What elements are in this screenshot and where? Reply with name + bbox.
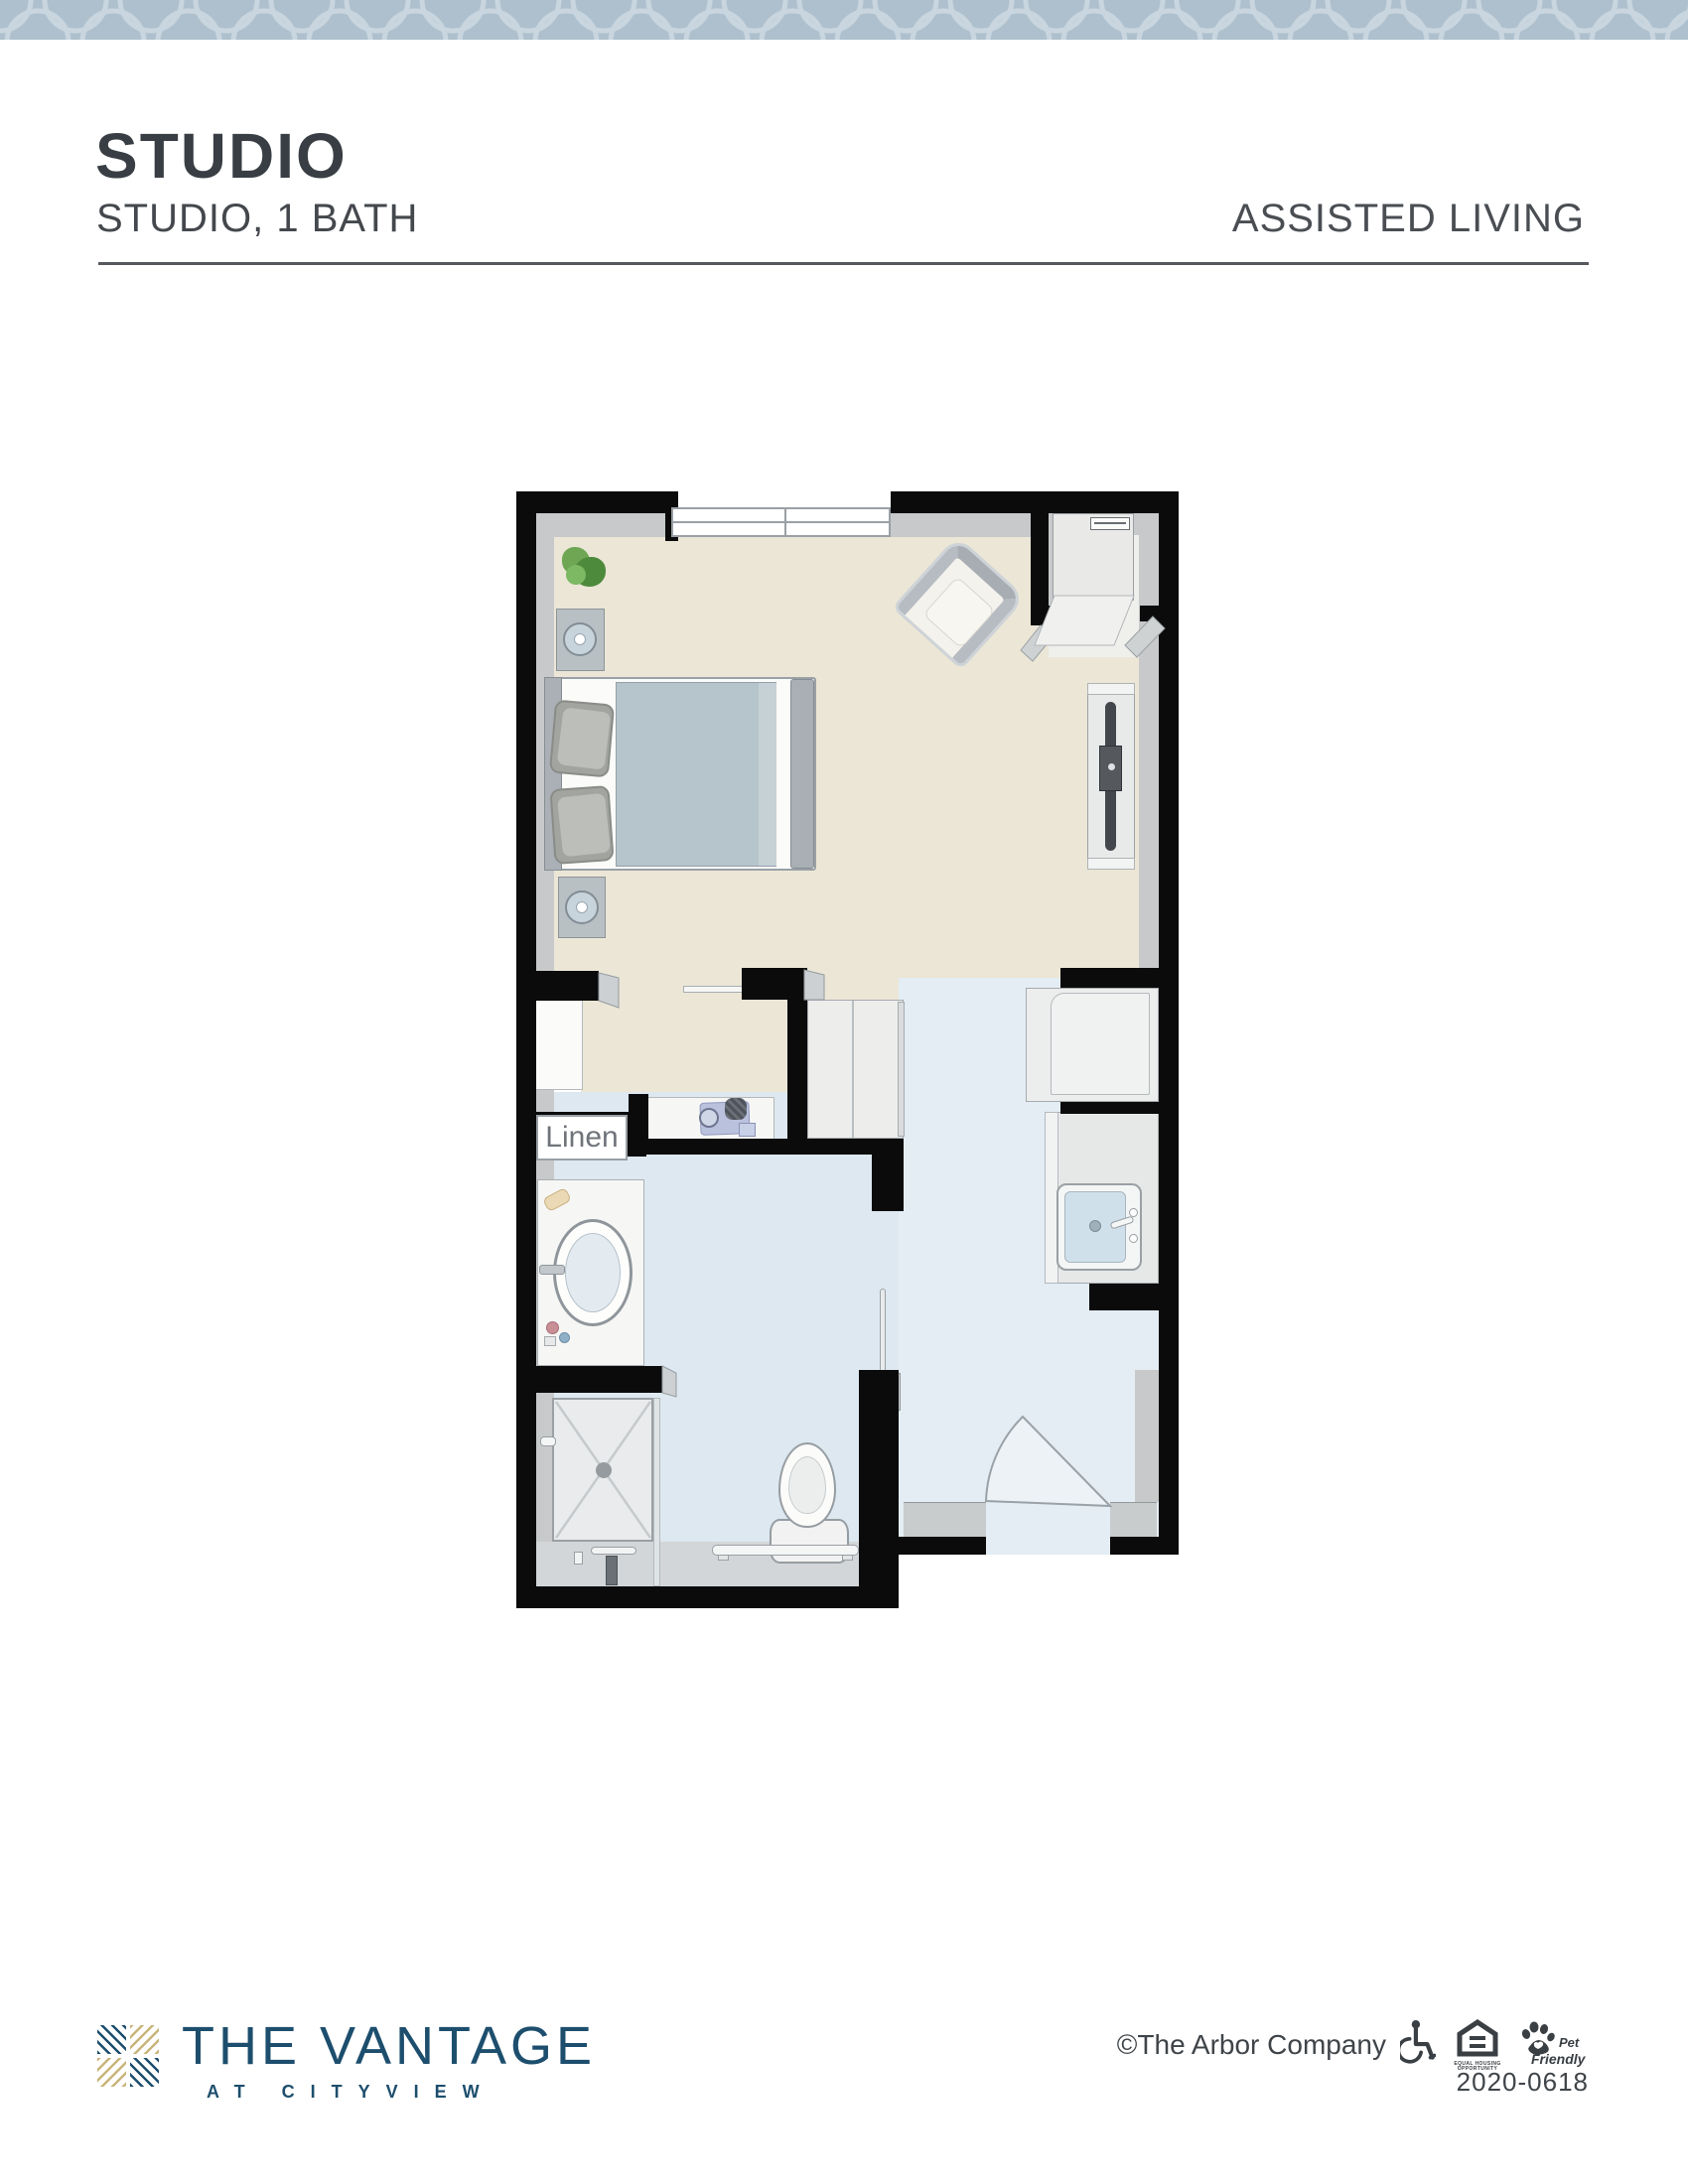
vanity-toiletry <box>546 1321 559 1334</box>
bed-blanket-fold <box>759 683 776 866</box>
hvac-vent-line <box>1094 522 1126 524</box>
page-title: STUDIO <box>95 119 348 193</box>
tv-console-top-cap <box>1087 683 1135 695</box>
exterior-wall-left <box>516 491 536 1608</box>
logo-quadrant <box>130 2058 159 2087</box>
amenity-cup <box>699 1108 719 1128</box>
logo-quadrant <box>97 2025 126 2054</box>
logo-quadrant <box>97 2058 126 2087</box>
bath-grab-bar-foot <box>718 1555 729 1561</box>
nook-rail <box>683 986 743 993</box>
plan-number: 2020-0618 <box>1457 2067 1589 2098</box>
pet-friendly-text-bottom: Friendly <box>1531 2051 1585 2067</box>
wall <box>1060 968 1159 988</box>
logo-wordmark: THE VANTAGE <box>182 2015 596 2077</box>
closet-sliding-door <box>898 1002 905 1137</box>
wall <box>534 1366 662 1393</box>
wall-face-top-right <box>891 511 1031 537</box>
exterior-wall-bottom <box>516 1586 899 1608</box>
decorative-trellis-banner <box>0 0 1688 40</box>
shower-faucet-stem <box>606 1556 618 1585</box>
shower-pan <box>552 1398 653 1542</box>
bath-grab-bar-foot <box>842 1555 853 1561</box>
logo-tagline: AT CITYVIEW <box>207 2082 495 2103</box>
linen-closet <box>534 1000 583 1090</box>
pet-friendly-text-top: Pet <box>1559 2035 1579 2050</box>
copyright-text: ©The Arbor Company <box>1117 2029 1386 2061</box>
lamp-bottom-center <box>576 901 588 913</box>
plant-leaf <box>566 565 586 585</box>
vanity-toiletry <box>559 1332 570 1343</box>
entry-door-jamb-left <box>904 1502 986 1537</box>
window-divider <box>784 509 786 535</box>
logo-quadrant <box>130 2025 159 2054</box>
bed-pillow-top <box>557 707 612 769</box>
vantage-logo-icon <box>97 2025 161 2089</box>
bath-grab-bar <box>712 1545 859 1556</box>
vanity-toiletry <box>544 1336 556 1346</box>
linen-label: Linen <box>536 1115 628 1160</box>
appliance-inner <box>1051 993 1150 1095</box>
exterior-wall-top <box>891 491 1179 513</box>
header-divider <box>98 262 1589 265</box>
exterior-wall-bottom <box>892 1537 986 1555</box>
equal-housing-opportunity-icon: EQUAL HOUSING OPPORTUNITY <box>1450 2019 1505 2072</box>
kitchen-knob <box>1129 1234 1138 1243</box>
wall <box>859 1370 899 1608</box>
exterior-wall-top <box>516 491 671 513</box>
closet-wardrobe <box>807 1000 904 1139</box>
bed-pillow-top <box>557 793 611 858</box>
floor-plan: Linen <box>516 491 1179 1608</box>
vanity-sink-basin <box>565 1233 621 1312</box>
footer-right: ©The Arbor Company EQUAL HOUSING OPPORTU… <box>1117 2017 1593 2073</box>
sliding-door-leaf <box>880 1289 886 1380</box>
window-mullion <box>673 521 889 523</box>
linen-label-text: Linen <box>545 1121 618 1155</box>
wall <box>1140 606 1159 621</box>
wall <box>629 1139 904 1155</box>
wall <box>742 968 807 1000</box>
lamp-top-center <box>574 633 586 645</box>
wall <box>1060 1102 1159 1114</box>
toilet-bowl-inner <box>788 1456 826 1514</box>
kitchen-sink-drain <box>1089 1220 1101 1232</box>
vanity-faucet <box>539 1265 565 1275</box>
kitchen-knob <box>1129 1208 1138 1217</box>
wall-face-hall-right <box>1135 1370 1159 1502</box>
wall <box>787 1000 807 1155</box>
page-subtitle: STUDIO, 1 BATH <box>96 197 418 241</box>
wall-face-right <box>1139 511 1159 968</box>
tv-console-bottom-cap <box>1087 858 1135 870</box>
bed-mattress <box>616 682 776 867</box>
closet-divider <box>852 1001 854 1138</box>
exterior-wall-bottom <box>1110 1537 1179 1555</box>
wall-face-top-left <box>534 511 671 537</box>
wall <box>1089 1284 1159 1310</box>
tv-mount-dot <box>1108 763 1115 770</box>
shower-foot <box>574 1552 583 1565</box>
amenity-box <box>739 1123 756 1137</box>
community-type-label: ASSISTED LIVING <box>1232 197 1585 241</box>
bed-footboard <box>790 679 814 869</box>
exterior-wall-right <box>1159 491 1179 1555</box>
amenity-basket <box>725 1098 747 1120</box>
wall <box>1031 606 1070 625</box>
shower-glass <box>653 1398 660 1586</box>
shower-grab-bar <box>540 1436 556 1446</box>
shower-faucet-arm <box>591 1547 636 1555</box>
entry-door-jamb-right <box>1110 1502 1157 1537</box>
hvac-vent-grille <box>1090 517 1130 530</box>
wheelchair-accessible-icon <box>1400 2019 1436 2072</box>
wall <box>872 1155 904 1211</box>
pet-friendly-icon: Pet Friendly <box>1519 2021 1593 2069</box>
